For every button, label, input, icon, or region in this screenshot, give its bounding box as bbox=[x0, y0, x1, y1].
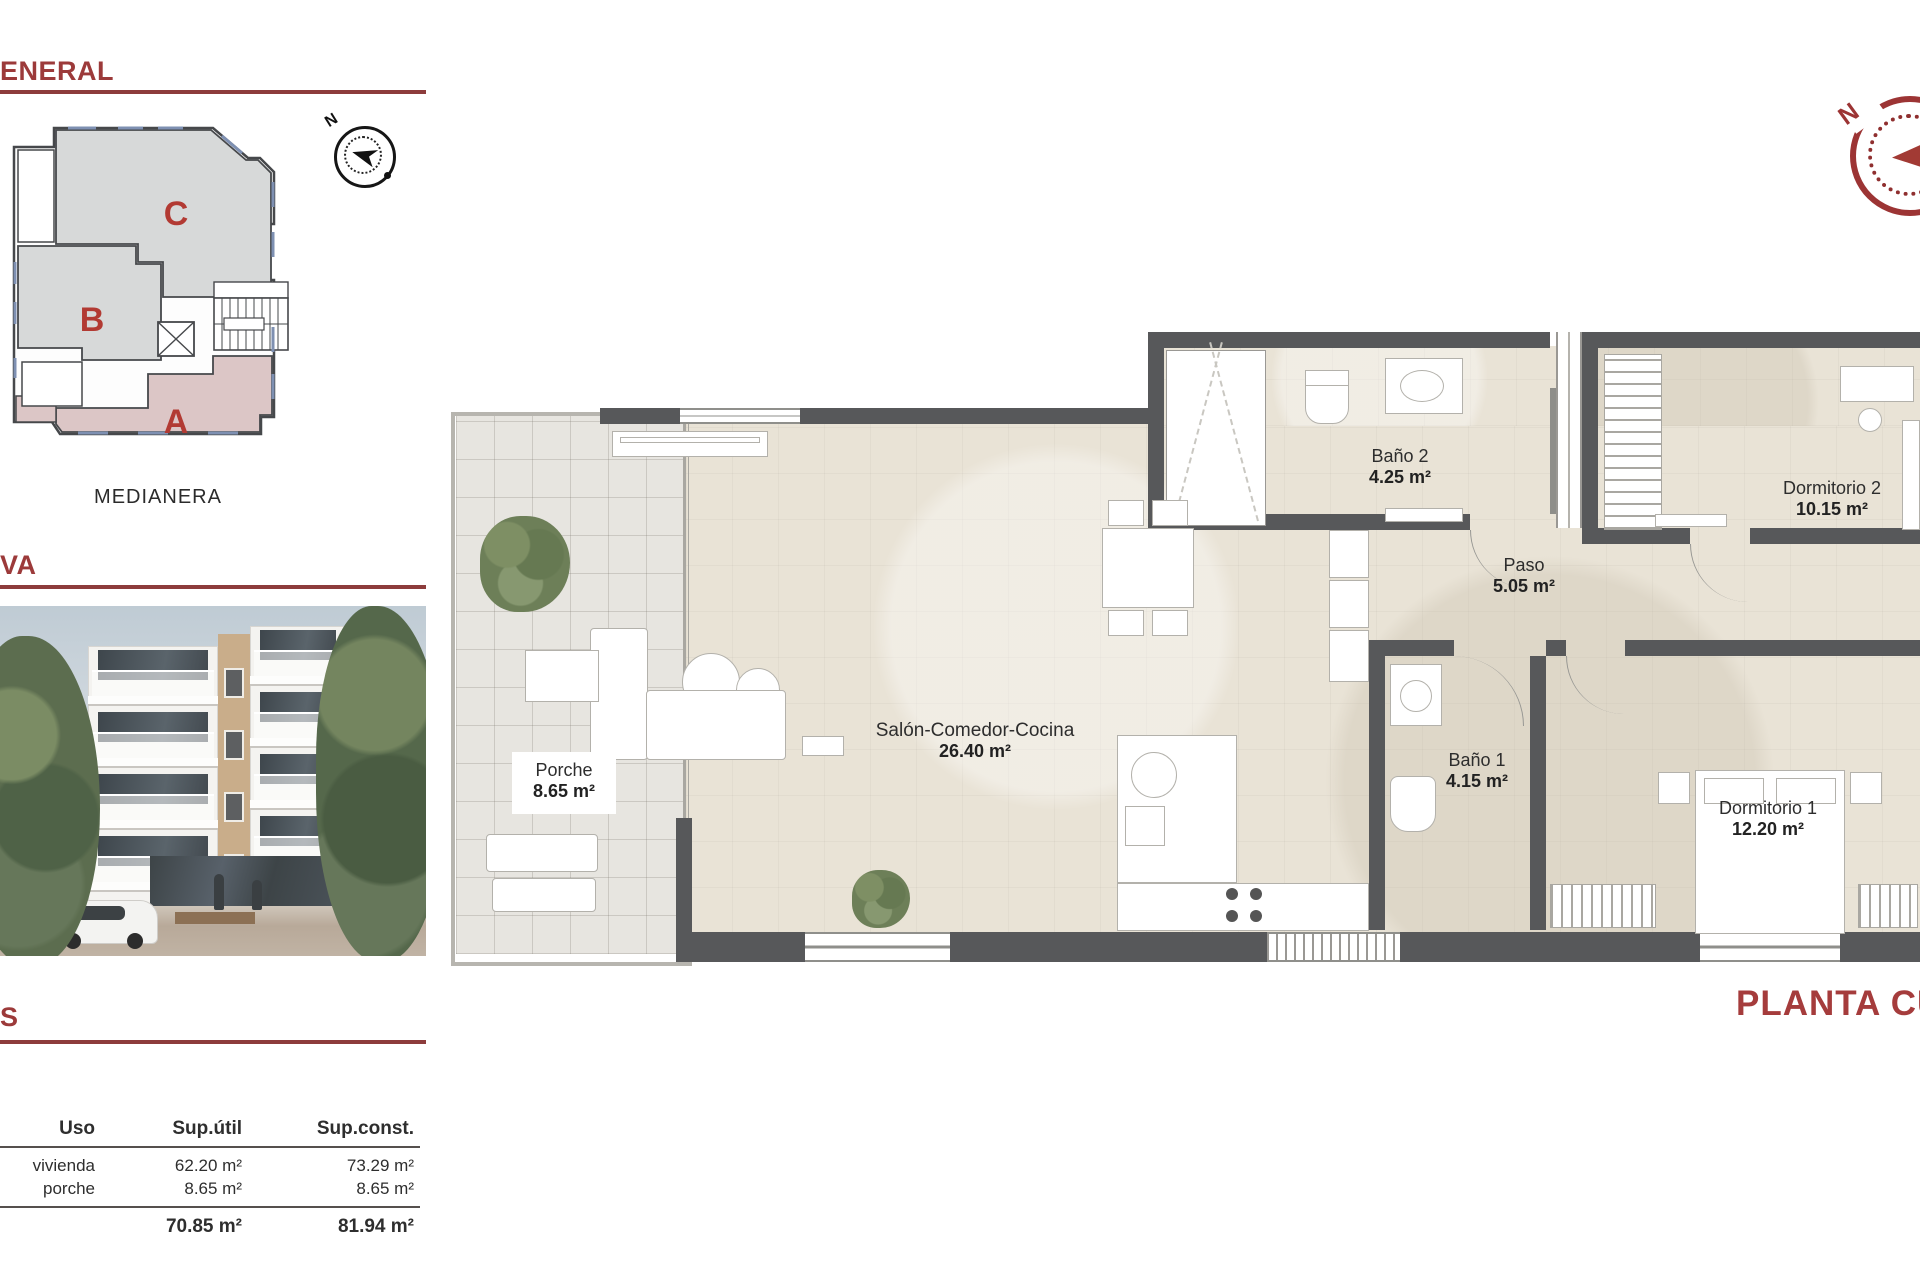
north-compass-icon: N bbox=[1836, 86, 1920, 222]
nightstand bbox=[1850, 772, 1882, 804]
room-name: Salón-Comedor-Cocina bbox=[876, 720, 1075, 741]
section-rule bbox=[0, 90, 426, 94]
shelf bbox=[1655, 514, 1727, 527]
wall bbox=[600, 408, 680, 424]
stairs-icon bbox=[224, 318, 264, 330]
section-title-areas: S bbox=[0, 1002, 19, 1033]
cell-const: 8.65 m² bbox=[242, 1179, 414, 1199]
wardrobe bbox=[1550, 884, 1656, 928]
room-area: 10.15 m² bbox=[1783, 499, 1881, 520]
sun-lounger bbox=[492, 878, 596, 912]
room-area: 4.25 m² bbox=[1369, 467, 1431, 488]
table-rule bbox=[0, 1206, 420, 1208]
room-label-paso: Paso 5.05 m² bbox=[1493, 555, 1555, 597]
key-plan-room bbox=[18, 150, 54, 242]
balcony bbox=[92, 708, 214, 766]
stairs-icon bbox=[214, 282, 288, 298]
sideboard bbox=[620, 437, 760, 443]
toilet-tank bbox=[1305, 370, 1349, 386]
total-util: 70.85 m² bbox=[95, 1216, 242, 1238]
wall bbox=[1546, 640, 1566, 656]
wall bbox=[800, 408, 1150, 424]
key-plan-room bbox=[22, 362, 82, 406]
washbasin-icon bbox=[1400, 680, 1432, 712]
wall bbox=[1582, 332, 1920, 348]
tree bbox=[316, 606, 426, 956]
planter bbox=[175, 912, 255, 924]
areas-table-header: Uso Sup.útil Sup.const. bbox=[0, 1118, 420, 1140]
toilet-icon bbox=[1390, 776, 1436, 832]
chair bbox=[1152, 610, 1188, 636]
person-figure bbox=[214, 874, 224, 910]
cell-uso: porche bbox=[0, 1179, 95, 1199]
compass-north-label: N bbox=[322, 110, 341, 131]
key-plan: C B A bbox=[8, 112, 308, 480]
section-rule bbox=[0, 585, 426, 589]
cell-uso: vivienda bbox=[0, 1156, 95, 1176]
plan-sheet: ENERAL C B bbox=[0, 0, 1920, 1280]
shelf bbox=[1385, 508, 1463, 522]
room-label-dorm1: Dormitorio 1 12.20 m² bbox=[1719, 798, 1817, 840]
section-title-views: VA bbox=[0, 550, 37, 581]
balcony bbox=[92, 646, 214, 704]
table-total-row: 70.85 m² 81.94 m² bbox=[0, 1216, 420, 1238]
kitchen-sink-icon bbox=[1131, 752, 1177, 798]
floor-plan: Baño 2 4.25 m² Paso 5.05 m² Dormitorio 2… bbox=[450, 328, 1920, 980]
balcony bbox=[92, 770, 214, 828]
tree bbox=[0, 636, 100, 956]
cell-util: 62.20 m² bbox=[95, 1156, 242, 1176]
cell-const: 73.29 m² bbox=[242, 1156, 414, 1176]
room-name: Dormitorio 2 bbox=[1783, 478, 1881, 498]
table-rule bbox=[0, 1146, 420, 1148]
building-render-photo bbox=[0, 606, 426, 956]
total-const: 81.94 m² bbox=[242, 1216, 414, 1238]
room-name: Porche bbox=[535, 760, 592, 780]
window bbox=[680, 408, 800, 424]
table-row: porche 8.65 m² 8.65 m² bbox=[0, 1179, 420, 1201]
unit-c-label: C bbox=[164, 195, 189, 233]
chair bbox=[1152, 500, 1188, 526]
unit-b-label: B bbox=[80, 301, 105, 339]
hob-icon bbox=[1218, 881, 1274, 931]
wardrobe bbox=[1858, 884, 1918, 928]
wall bbox=[1369, 640, 1454, 656]
wall bbox=[1582, 332, 1598, 544]
window bbox=[1700, 932, 1840, 962]
chair bbox=[1108, 610, 1144, 636]
wall bbox=[1148, 332, 1550, 348]
section-rule bbox=[0, 1040, 426, 1044]
chair bbox=[1108, 500, 1144, 526]
unit-a-label: A bbox=[164, 403, 189, 441]
room-name: Baño 2 bbox=[1371, 446, 1428, 466]
room-label-bano2: Baño 2 4.25 m² bbox=[1369, 446, 1431, 488]
wall bbox=[1750, 528, 1920, 544]
table-row: vivienda 62.20 m² 73.29 m² bbox=[0, 1156, 420, 1178]
room-label-salon: Salón-Comedor-Cocina 26.40 m² bbox=[876, 720, 1075, 762]
wall bbox=[1369, 640, 1385, 930]
window bbox=[805, 932, 950, 962]
section-title-general: ENERAL bbox=[0, 56, 114, 87]
person-figure bbox=[252, 880, 262, 910]
room-area: 5.05 m² bbox=[1493, 576, 1555, 597]
coffee-table bbox=[802, 736, 844, 756]
washbasin-icon bbox=[1400, 370, 1444, 402]
bed bbox=[1902, 420, 1920, 530]
chair bbox=[1858, 408, 1882, 432]
north-compass-icon: N bbox=[328, 118, 400, 192]
room-name: Dormitorio 1 bbox=[1719, 798, 1817, 818]
room-label-porche: Porche 8.65 m² bbox=[533, 760, 595, 802]
col-header-const: Sup.const. bbox=[242, 1118, 414, 1140]
wall bbox=[1625, 640, 1920, 656]
window bbox=[1267, 932, 1400, 962]
room-area: 26.40 m² bbox=[876, 741, 1075, 762]
sideboard bbox=[612, 431, 768, 457]
porch-table bbox=[525, 650, 599, 702]
wall bbox=[1530, 656, 1546, 930]
nightstand bbox=[1658, 772, 1690, 804]
col-header-util: Sup.útil bbox=[95, 1118, 242, 1140]
room-name: Paso bbox=[1503, 555, 1544, 575]
appliance bbox=[1329, 530, 1369, 578]
desk bbox=[1840, 366, 1914, 402]
cell-util: 8.65 m² bbox=[95, 1179, 242, 1199]
sofa bbox=[646, 690, 786, 760]
col-header-uso: Uso bbox=[0, 1118, 95, 1140]
window bbox=[1556, 332, 1582, 528]
wardrobe bbox=[1604, 354, 1662, 530]
room-area: 12.20 m² bbox=[1719, 819, 1817, 840]
medianera-label: MEDIANERA bbox=[8, 486, 308, 509]
compass-dot bbox=[384, 172, 391, 179]
room-label-bano1: Baño 1 4.15 m² bbox=[1446, 750, 1508, 792]
plan-title: PLANTA CUA bbox=[1736, 984, 1920, 1024]
sun-lounger bbox=[486, 834, 598, 872]
room-name: Baño 1 bbox=[1448, 750, 1505, 770]
dining-table bbox=[1102, 528, 1194, 608]
wall bbox=[1582, 528, 1690, 544]
appliance bbox=[1125, 806, 1165, 846]
appliance bbox=[1329, 580, 1369, 628]
room-area: 8.65 m² bbox=[533, 781, 595, 802]
appliance bbox=[1329, 630, 1369, 682]
room-label-dorm2: Dormitorio 2 10.15 m² bbox=[1783, 478, 1881, 520]
room-area: 4.15 m² bbox=[1446, 771, 1508, 792]
